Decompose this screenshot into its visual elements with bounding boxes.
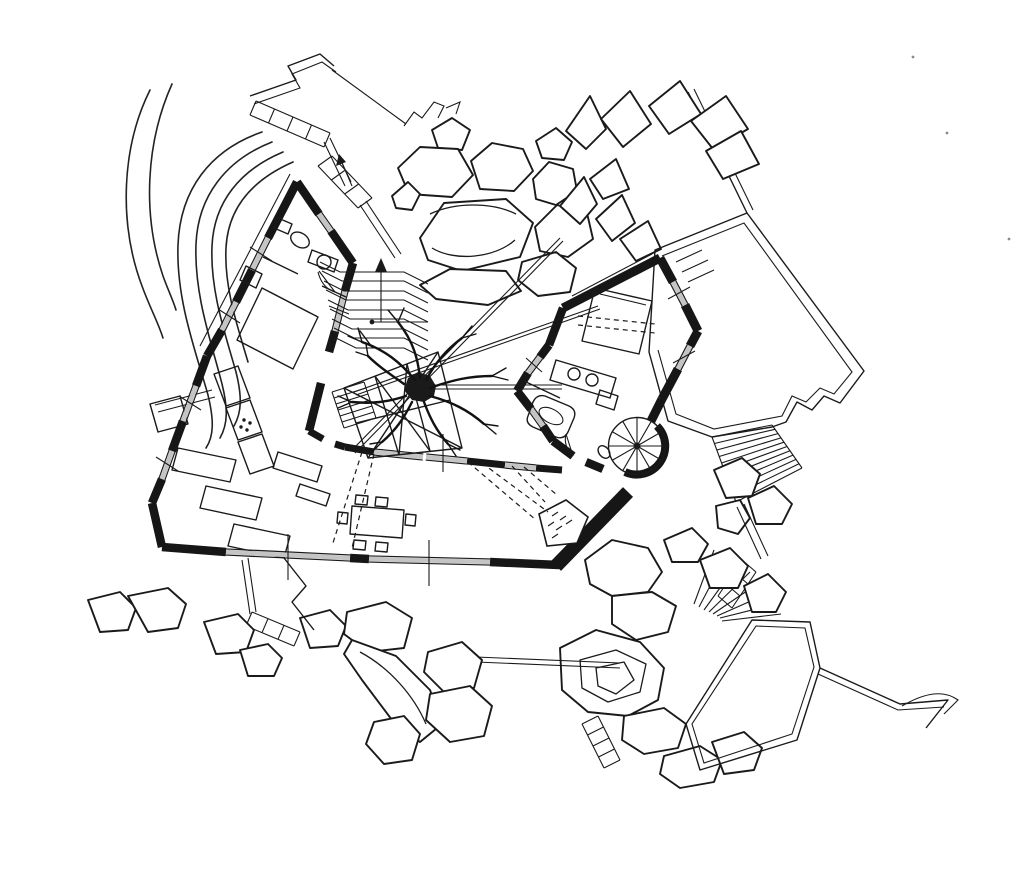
- floor-plan-sheet: [0, 0, 1024, 876]
- paper-background: [0, 0, 1024, 876]
- spiral-staircase: [609, 418, 666, 475]
- floor-plan-drawing: [0, 0, 1024, 876]
